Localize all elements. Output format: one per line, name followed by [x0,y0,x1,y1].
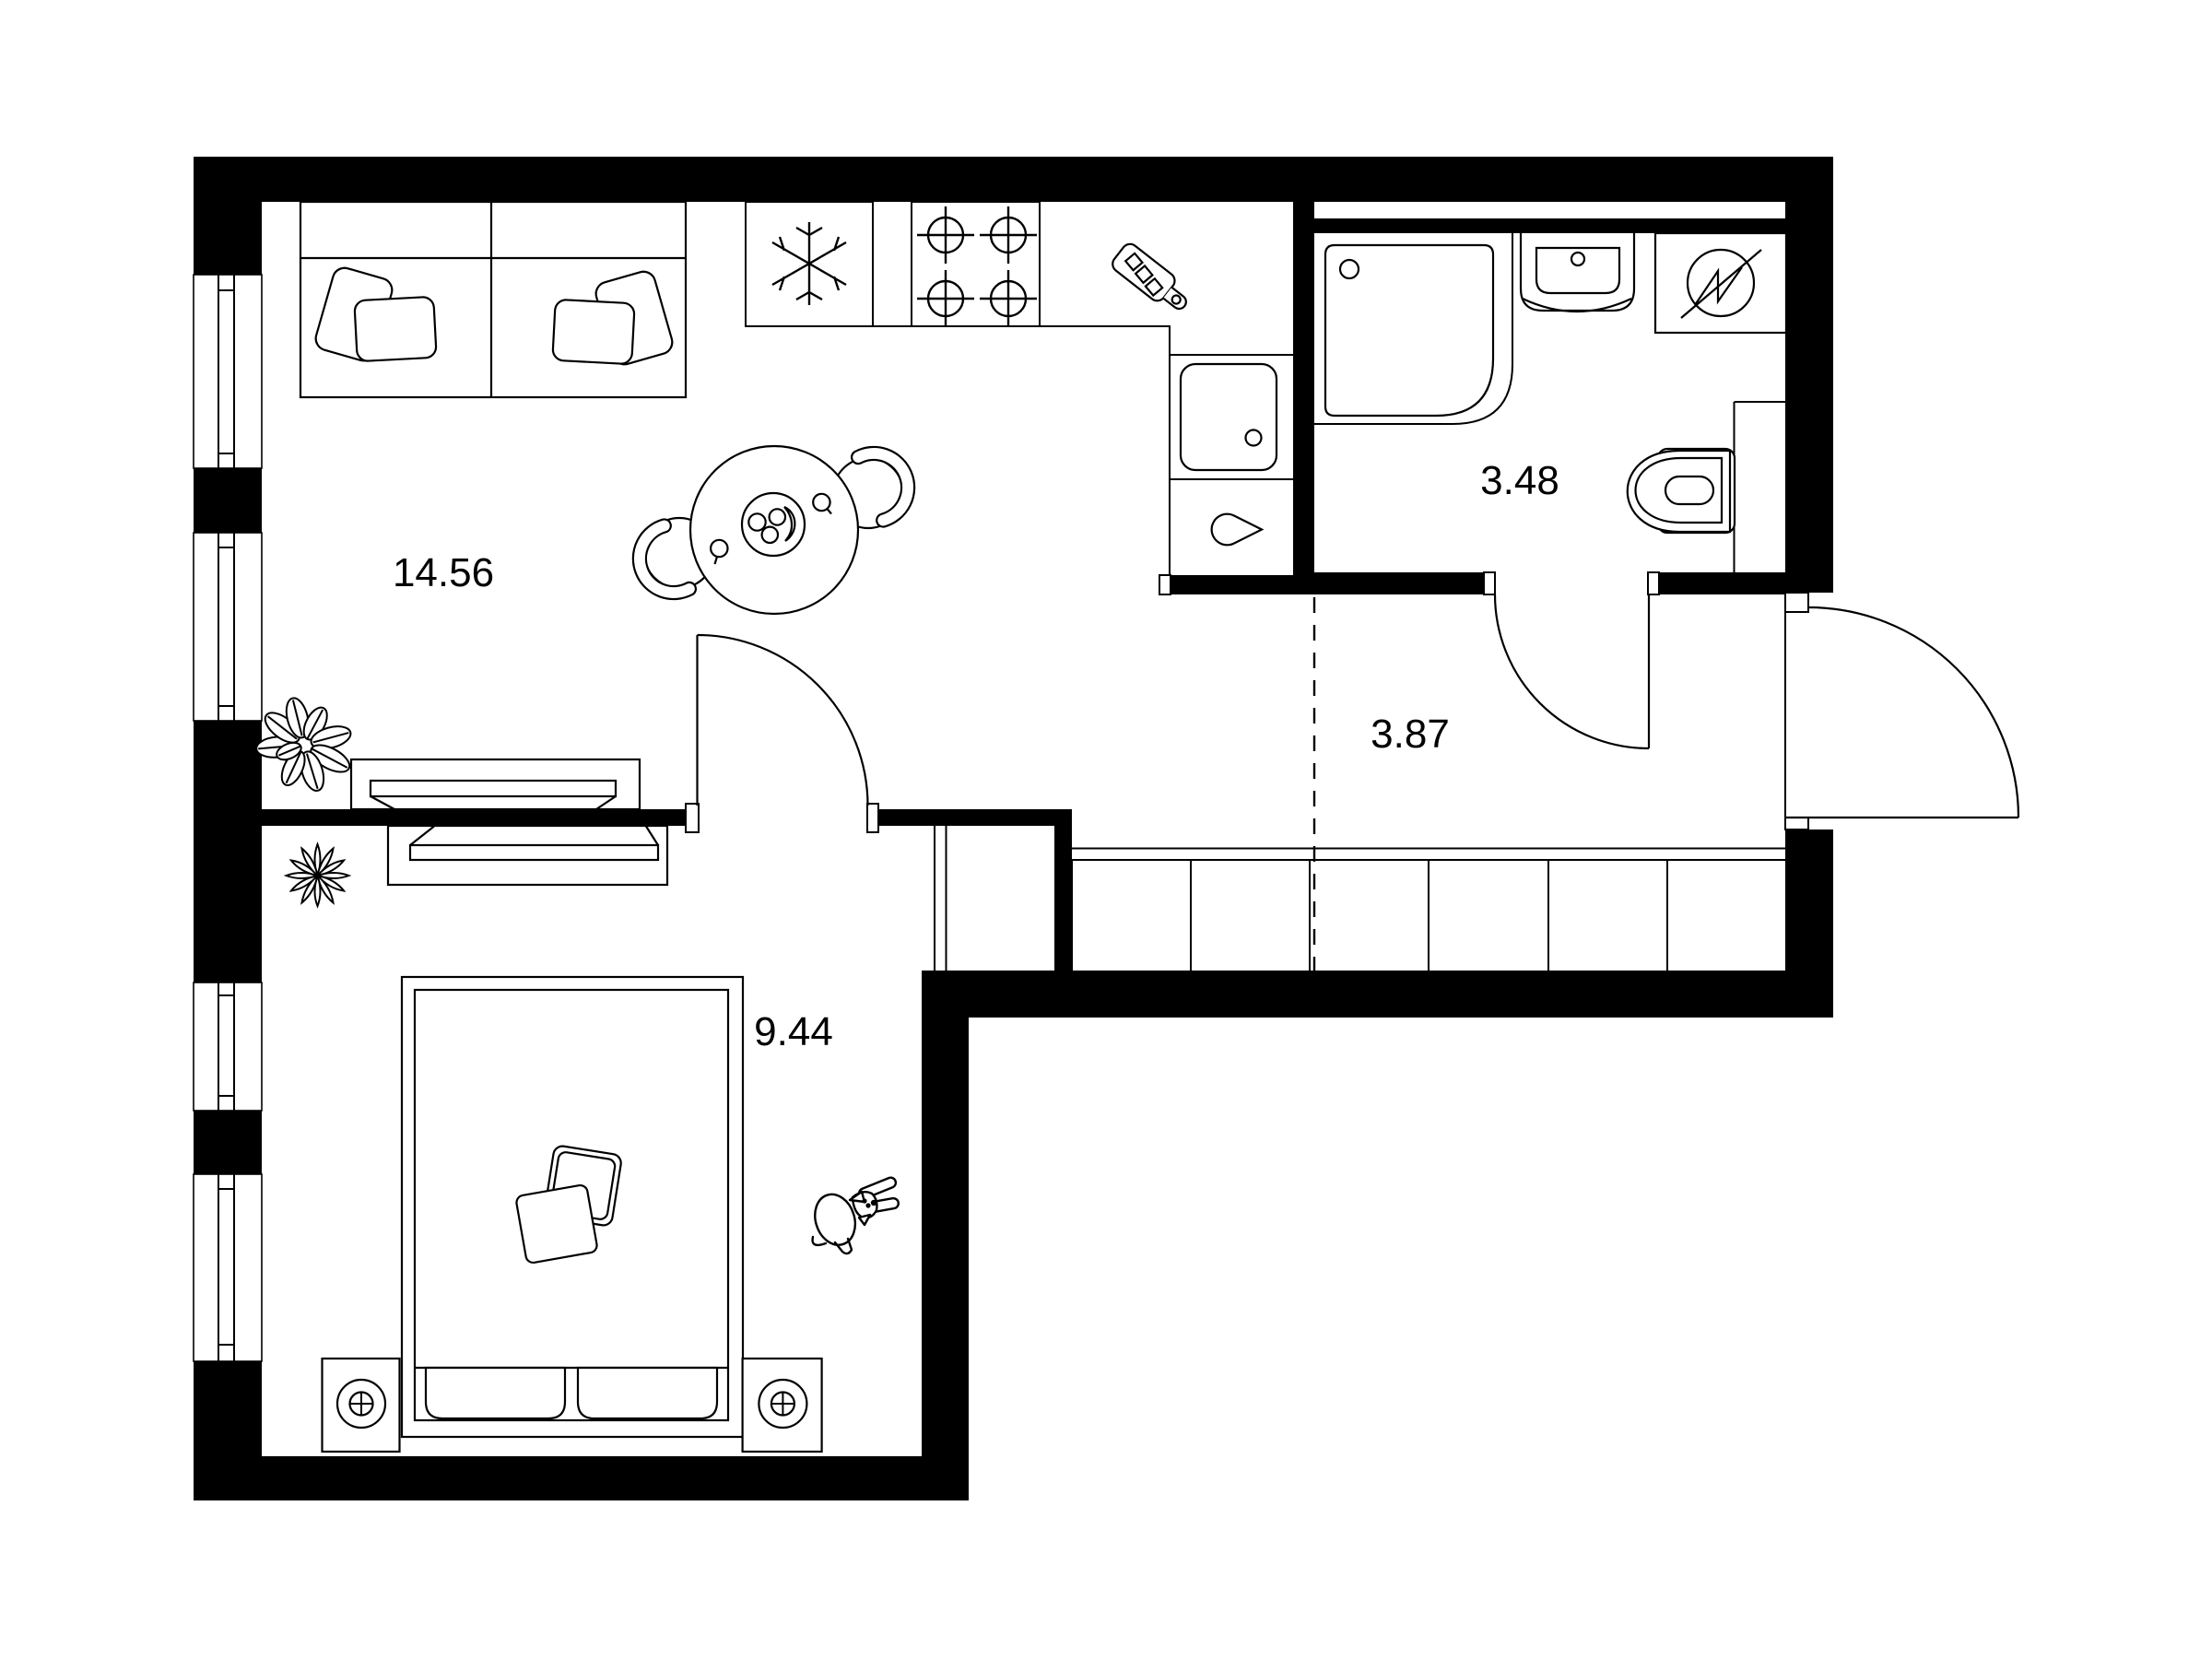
svg-text:9.44: 9.44 [754,1009,833,1054]
svg-text:3.87: 3.87 [1371,712,1450,757]
svg-text:3.48: 3.48 [1480,458,1559,503]
svg-text:14.56: 14.56 [393,550,494,595]
